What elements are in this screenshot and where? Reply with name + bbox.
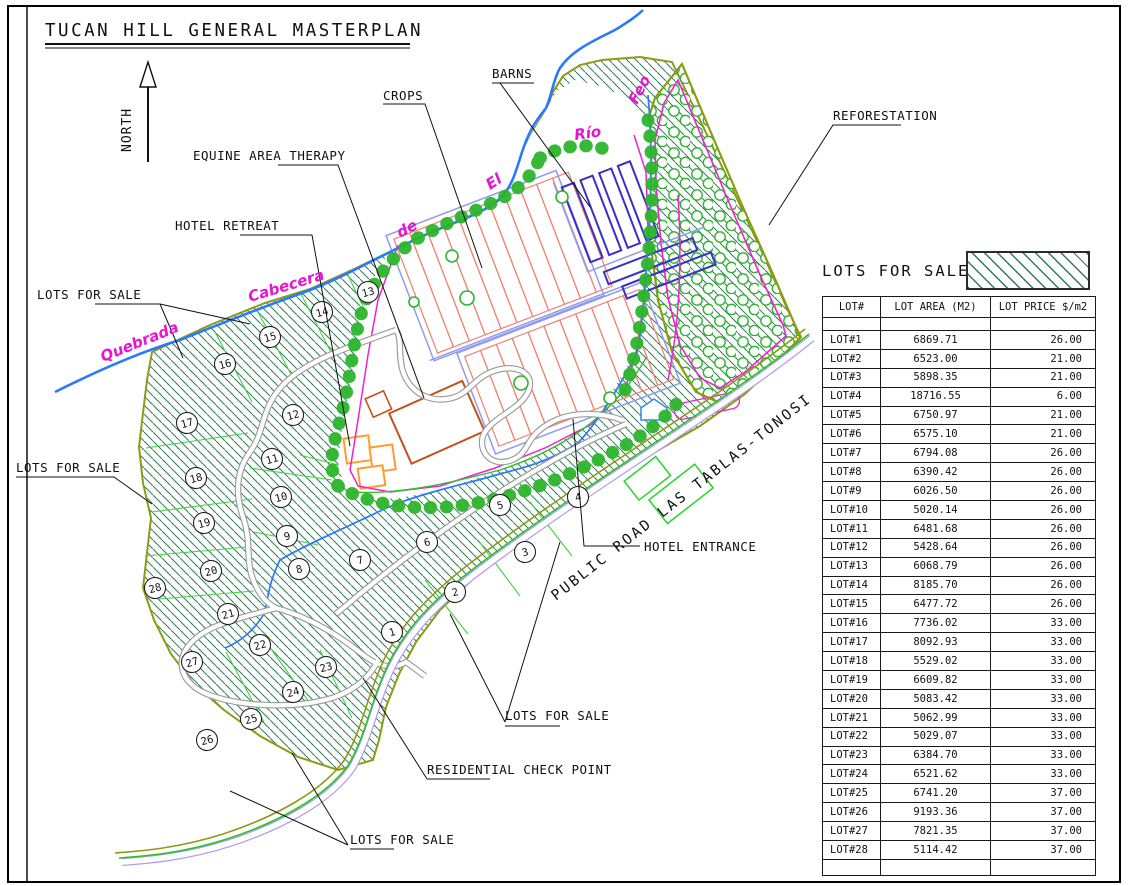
lot-price-cell: 33.00: [991, 633, 1096, 652]
lots-for-sale-label-w: LOTS FOR SALE: [16, 460, 120, 475]
table-row: LOT#20 5083.42 33.00: [823, 689, 1096, 708]
table-row: LOT#16 7736.02 33.00: [823, 614, 1096, 633]
lot-price-cell: 26.00: [991, 331, 1096, 350]
legend-title: LOTS FOR SALE: [822, 262, 969, 280]
legend-hatch-swatch: [966, 251, 1090, 290]
lot-id-cell: LOT#28: [823, 841, 881, 860]
table-row: LOT#19 6609.82 33.00: [823, 671, 1096, 690]
lot-price-cell: 26.00: [991, 463, 1096, 482]
lot-price-cell: 33.00: [991, 765, 1096, 784]
table-header-cell: LOT PRICE $/m2: [991, 297, 1096, 318]
table-row: LOT#27 7821.35 37.00: [823, 822, 1096, 841]
lot-id-cell: LOT#12: [823, 538, 881, 557]
lot-id-cell: LOT#16: [823, 614, 881, 633]
lot-area-cell: 5062.99: [881, 708, 991, 727]
table-row: LOT#12 5428.64 26.00: [823, 538, 1096, 557]
lot-price-cell: 26.00: [991, 576, 1096, 595]
lot-area-cell: 7821.35: [881, 822, 991, 841]
lot-id-cell: LOT#11: [823, 519, 881, 538]
lot-area-cell: 5898.35: [881, 368, 991, 387]
table-row: LOT#7 6794.08 26.00: [823, 444, 1096, 463]
table-row: LOT#1 6869.71 26.00: [823, 331, 1096, 350]
table-row: LOT#24 6521.62 33.00: [823, 765, 1096, 784]
page-title: TUCAN HILL GENERAL MASTERPLAN: [45, 21, 423, 41]
lot-id-cell: LOT#14: [823, 576, 881, 595]
table-row: LOT#18 5529.02 33.00: [823, 652, 1096, 671]
north-label: NORTH: [120, 108, 135, 152]
lot-id-cell: LOT#5: [823, 406, 881, 425]
lot-area-cell: 6521.62: [881, 765, 991, 784]
lots-for-sale-label-sw: LOTS FOR SALE: [350, 832, 454, 847]
lot-area-cell: 8185.70: [881, 576, 991, 595]
lot-price-cell: 26.00: [991, 557, 1096, 576]
table-row: LOT#28 5114.42 37.00: [823, 841, 1096, 860]
lot-price-cell: 21.00: [991, 368, 1096, 387]
lot-id-cell: LOT#15: [823, 595, 881, 614]
lot-area-cell: 6741.20: [881, 784, 991, 803]
lot-area-cell: 5114.42: [881, 841, 991, 860]
hotel-entrance-label: HOTEL ENTRANCE: [644, 539, 756, 554]
lot-price-cell: 33.00: [991, 708, 1096, 727]
lot-area-cell: 18716.55: [881, 387, 991, 406]
lot-area-cell: 7736.02: [881, 614, 991, 633]
title-block: TUCAN HILL GENERAL MASTERPLAN: [45, 21, 423, 48]
lot-id-cell: LOT#26: [823, 803, 881, 822]
lot-id-cell: LOT#6: [823, 425, 881, 444]
table-row: LOT#2 6523.00 21.00: [823, 349, 1096, 368]
lot-area-cell: 6481.68: [881, 519, 991, 538]
lot-id-cell: LOT#25: [823, 784, 881, 803]
lot-id-cell: LOT#19: [823, 671, 881, 690]
lot-price-cell: 26.00: [991, 519, 1096, 538]
lot-area-cell: 6575.10: [881, 425, 991, 444]
table-row: LOT#3 5898.35 21.00: [823, 368, 1096, 387]
table-row: LOT#9 6026.50 26.00: [823, 482, 1096, 501]
barns-label: BARNS: [492, 66, 532, 81]
lot-id-cell: LOT#20: [823, 689, 881, 708]
lots-for-sale-label-s: LOTS FOR SALE: [505, 708, 609, 723]
residential-check-point-label: RESIDENTIAL CHECK POINT: [427, 762, 612, 777]
lot-area-cell: 6390.42: [881, 463, 991, 482]
lot-price-cell: 26.00: [991, 538, 1096, 557]
lot-price-cell: 21.00: [991, 425, 1096, 444]
lot-price-cell: 21.00: [991, 349, 1096, 368]
lot-area-cell: 6477.72: [881, 595, 991, 614]
lot-price-cell: 26.00: [991, 595, 1096, 614]
lots-price-table: LOT#LOT AREA (M2)LOT PRICE $/m2 LOT#1 68…: [822, 296, 1096, 876]
lot-id-cell: LOT#8: [823, 463, 881, 482]
lot-id-cell: LOT#3: [823, 368, 881, 387]
lot-price-cell: 37.00: [991, 803, 1096, 822]
lot-area-cell: 6869.71: [881, 331, 991, 350]
lot-id-cell: LOT#2: [823, 349, 881, 368]
lot-price-cell: 33.00: [991, 652, 1096, 671]
masterplan-sheet: 1234567891011121314151617181920212223242…: [0, 0, 1129, 886]
lot-area-cell: 6068.79: [881, 557, 991, 576]
north-arrow: NORTH: [120, 62, 156, 162]
lot-price-cell: 37.00: [991, 841, 1096, 860]
table-row: LOT#6 6575.10 21.00: [823, 425, 1096, 444]
lot-id-cell: LOT#10: [823, 501, 881, 520]
lots-for-sale-label-nw: LOTS FOR SALE: [37, 287, 141, 302]
lot-id-cell: LOT#17: [823, 633, 881, 652]
table-header-cell: LOT#: [823, 297, 881, 318]
lot-area-cell: 6026.50: [881, 482, 991, 501]
lot-id-cell: LOT#4: [823, 387, 881, 406]
lot-id-cell: LOT#22: [823, 727, 881, 746]
table-blank-row: [823, 318, 1096, 331]
reforestation-label: REFORESTATION: [833, 108, 937, 123]
lot-price-cell: 6.00: [991, 387, 1096, 406]
lot-area-cell: 5029.07: [881, 727, 991, 746]
table-row: LOT#21 5062.99 33.00: [823, 708, 1096, 727]
table-row: LOT#5 6750.97 21.00: [823, 406, 1096, 425]
table-row: LOT#14 8185.70 26.00: [823, 576, 1096, 595]
lot-price-cell: 26.00: [991, 501, 1096, 520]
lot-id-cell: LOT#13: [823, 557, 881, 576]
table-row: LOT#11 6481.68 26.00: [823, 519, 1096, 538]
lot-price-cell: 37.00: [991, 822, 1096, 841]
lot-price-cell: 33.00: [991, 671, 1096, 690]
lot-price-cell: 33.00: [991, 727, 1096, 746]
lot-price-cell: 33.00: [991, 614, 1096, 633]
lot-price-cell: 37.00: [991, 784, 1096, 803]
table-row: LOT#17 8092.93 33.00: [823, 633, 1096, 652]
table-header-cell: LOT AREA (M2): [881, 297, 991, 318]
table-row: LOT#26 9193.36 37.00: [823, 803, 1096, 822]
lot-price-cell: 26.00: [991, 444, 1096, 463]
lot-id-cell: LOT#23: [823, 746, 881, 765]
lot-area-cell: 6523.00: [881, 349, 991, 368]
lot-area-cell: 5529.02: [881, 652, 991, 671]
lot-area-cell: 6750.97: [881, 406, 991, 425]
table-row: LOT#10 5020.14 26.00: [823, 501, 1096, 520]
table-row: LOT#13 6068.79 26.00: [823, 557, 1096, 576]
lot-area-cell: 5083.42: [881, 689, 991, 708]
lot-id-cell: LOT#27: [823, 822, 881, 841]
table-row: LOT#8 6390.42 26.00: [823, 463, 1096, 482]
lot-id-cell: LOT#18: [823, 652, 881, 671]
table-row: LOT#15 6477.72 26.00: [823, 595, 1096, 614]
table-row: LOT#23 6384.70 33.00: [823, 746, 1096, 765]
lot-price-cell: 26.00: [991, 482, 1096, 501]
crops-label: CROPS: [383, 88, 423, 103]
lot-id-cell: LOT#7: [823, 444, 881, 463]
lot-area-cell: 6384.70: [881, 746, 991, 765]
table-row: LOT#22 5029.07 33.00: [823, 727, 1096, 746]
lot-area-cell: 8092.93: [881, 633, 991, 652]
table-row: LOT#4 18716.55 6.00: [823, 387, 1096, 406]
table-header-row: LOT#LOT AREA (M2)LOT PRICE $/m2: [823, 297, 1096, 318]
lot-id-cell: LOT#24: [823, 765, 881, 784]
river-word-rio: Río: [573, 122, 602, 144]
lot-area-cell: 6794.08: [881, 444, 991, 463]
lot-id-cell: LOT#9: [823, 482, 881, 501]
lot-area-cell: 6609.82: [881, 671, 991, 690]
lot-area-cell: 5428.64: [881, 538, 991, 557]
lot-area-cell: 9193.36: [881, 803, 991, 822]
lot-id-cell: LOT#1: [823, 331, 881, 350]
equine-area-label: EQUINE AREA THERAPY: [193, 148, 346, 163]
lot-price-cell: 21.00: [991, 406, 1096, 425]
table-row: LOT#25 6741.20 37.00: [823, 784, 1096, 803]
table-blank-row: [823, 859, 1096, 875]
hotel-retreat-label: HOTEL RETREAT: [175, 218, 279, 233]
lot-price-cell: 33.00: [991, 746, 1096, 765]
lot-id-cell: LOT#21: [823, 708, 881, 727]
lot-area-cell: 5020.14: [881, 501, 991, 520]
lot-number-marker: 26: [194, 727, 220, 753]
lot-price-cell: 33.00: [991, 689, 1096, 708]
